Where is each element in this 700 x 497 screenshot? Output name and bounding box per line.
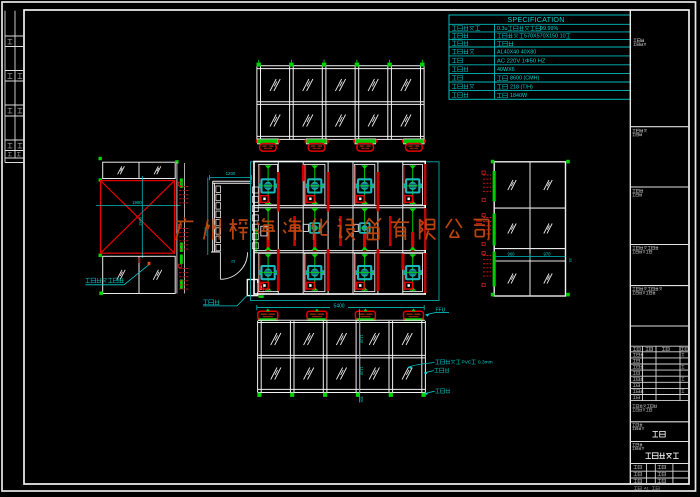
svg-text:970: 970 — [544, 252, 552, 257]
svg-text:40WX6: 40WX6 — [497, 67, 515, 73]
svg-text:1840W: 1840W — [510, 93, 528, 99]
svg-text:AC 220V 1Φ50 HZ: AC 220V 1Φ50 HZ — [497, 59, 546, 65]
svg-text:960: 960 — [508, 252, 516, 257]
svg-text:1980: 1980 — [132, 200, 142, 205]
svg-text:AL40X40 40X80: AL40X40 40X80 — [497, 50, 536, 56]
svg-text:A1: A1 — [644, 487, 649, 491]
svg-text:1130: 1130 — [360, 335, 365, 344]
svg-text:5400: 5400 — [333, 303, 344, 309]
svg-text:570X570X150 10: 570X570X150 10 — [524, 34, 566, 40]
svg-text:1130: 1130 — [360, 367, 365, 376]
svg-text:25: 25 — [568, 258, 572, 262]
svg-text:PVC: PVC — [462, 360, 472, 366]
svg-text:300: 300 — [360, 396, 364, 402]
svg-text:0.3mm: 0.3mm — [478, 360, 493, 366]
svg-text:1980: 1980 — [138, 216, 143, 226]
svg-text:SPECIFICATION: SPECIFICATION — [507, 15, 564, 24]
svg-text:99.99%: 99.99% — [540, 26, 558, 32]
svg-text:25: 25 — [231, 260, 235, 264]
svg-text:0.3u: 0.3u — [497, 26, 508, 32]
svg-text:218 (T/H): 218 (T/H) — [510, 84, 533, 90]
svg-text:1200: 1200 — [226, 171, 236, 176]
svg-text:8600 (CMH): 8600 (CMH) — [510, 76, 540, 82]
